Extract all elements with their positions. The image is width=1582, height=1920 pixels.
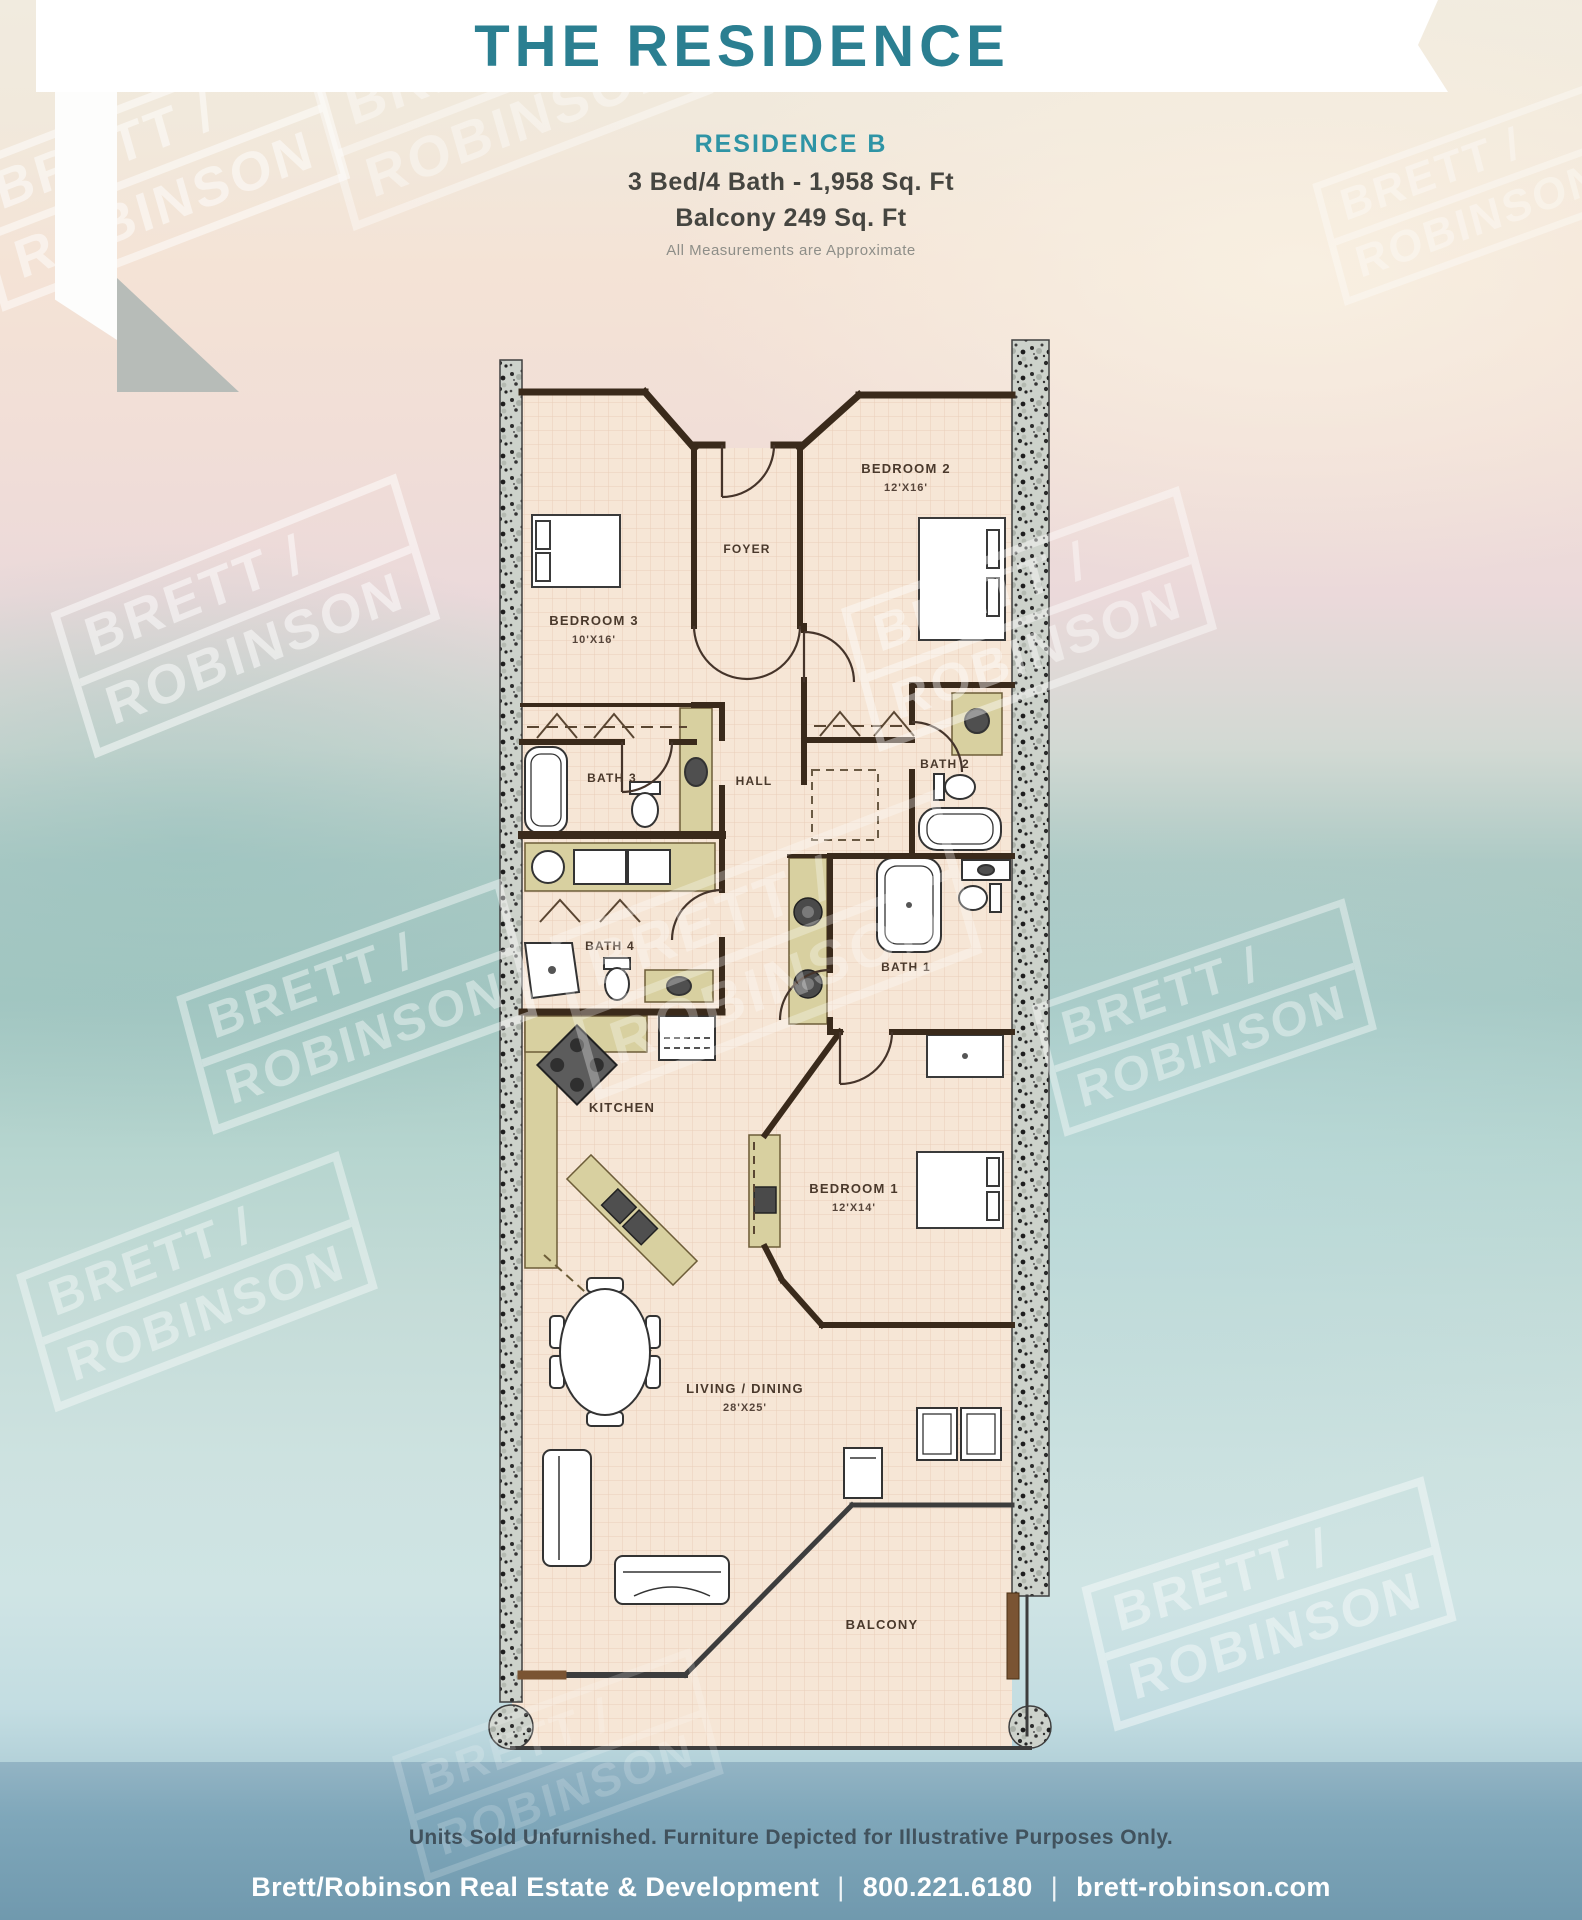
room-dims: 28'X25' [723, 1402, 767, 1414]
residence-name: RESIDENCE B [0, 130, 1582, 159]
room-dims: 10'X16' [572, 634, 616, 646]
room-label: BATH 3 [587, 771, 637, 785]
flyer-page: BRETT /ROBINSON BRETT /ROBINSON BRETT /R… [0, 0, 1582, 1920]
dresser-icon [927, 1035, 1003, 1077]
bed-icon-bedroom3 [532, 515, 620, 587]
room-label: BATH 1 [881, 960, 931, 974]
room-label: BALCONY [846, 1617, 919, 1632]
room-label: BEDROOM 1 [809, 1181, 899, 1196]
loveseat-icon [615, 1556, 729, 1604]
room-dims: 12'X16' [884, 482, 928, 494]
page-title: THE RESIDENCE [36, 0, 1448, 94]
footer-separator: | [819, 1872, 862, 1902]
room-label: BATH 2 [920, 757, 970, 771]
footer-info: Brett/Robinson Real Estate & Development… [0, 1872, 1582, 1903]
room-label: BEDROOM 2 [861, 461, 951, 476]
bed-icon-bedroom2 [919, 518, 1005, 640]
company-name: Brett/Robinson Real Estate & Development [251, 1872, 819, 1902]
floor-plan: BEDROOM 2 12'X16' BEDROOM 3 10'X16' FOYE… [482, 290, 1062, 1770]
room-dims: 12'X14' [832, 1202, 876, 1214]
room-label: HALL [736, 774, 773, 788]
refrigerator-icon [659, 1016, 715, 1060]
tv-stand-icon [844, 1448, 882, 1498]
measurements-note: All Measurements are Approximate [0, 242, 1582, 259]
room-label: BEDROOM 3 [549, 613, 639, 628]
title-banner: THE RESIDENCE [36, 0, 1448, 92]
bed-icon-bedroom1 [917, 1152, 1003, 1228]
residence-balcony-size: Balcony 249 Sq. Ft [0, 204, 1582, 233]
residence-specs: 3 Bed/4 Bath - 1,958 Sq. Ft [0, 168, 1582, 197]
room-label: KITCHEN [589, 1100, 655, 1115]
room-label: BATH 4 [585, 939, 635, 953]
phone-number: 800.221.6180 [863, 1872, 1033, 1902]
footer-separator: | [1033, 1872, 1076, 1902]
disclaimer-text: Units Sold Unfurnished. Furniture Depict… [0, 1826, 1582, 1850]
website-url: brett-robinson.com [1076, 1872, 1331, 1902]
residence-summary: RESIDENCE B 3 Bed/4 Bath - 1,958 Sq. Ft … [0, 130, 1582, 259]
room-label: LIVING / DINING [686, 1381, 804, 1396]
sofa-icon [543, 1450, 591, 1566]
room-label: FOYER [723, 542, 770, 556]
